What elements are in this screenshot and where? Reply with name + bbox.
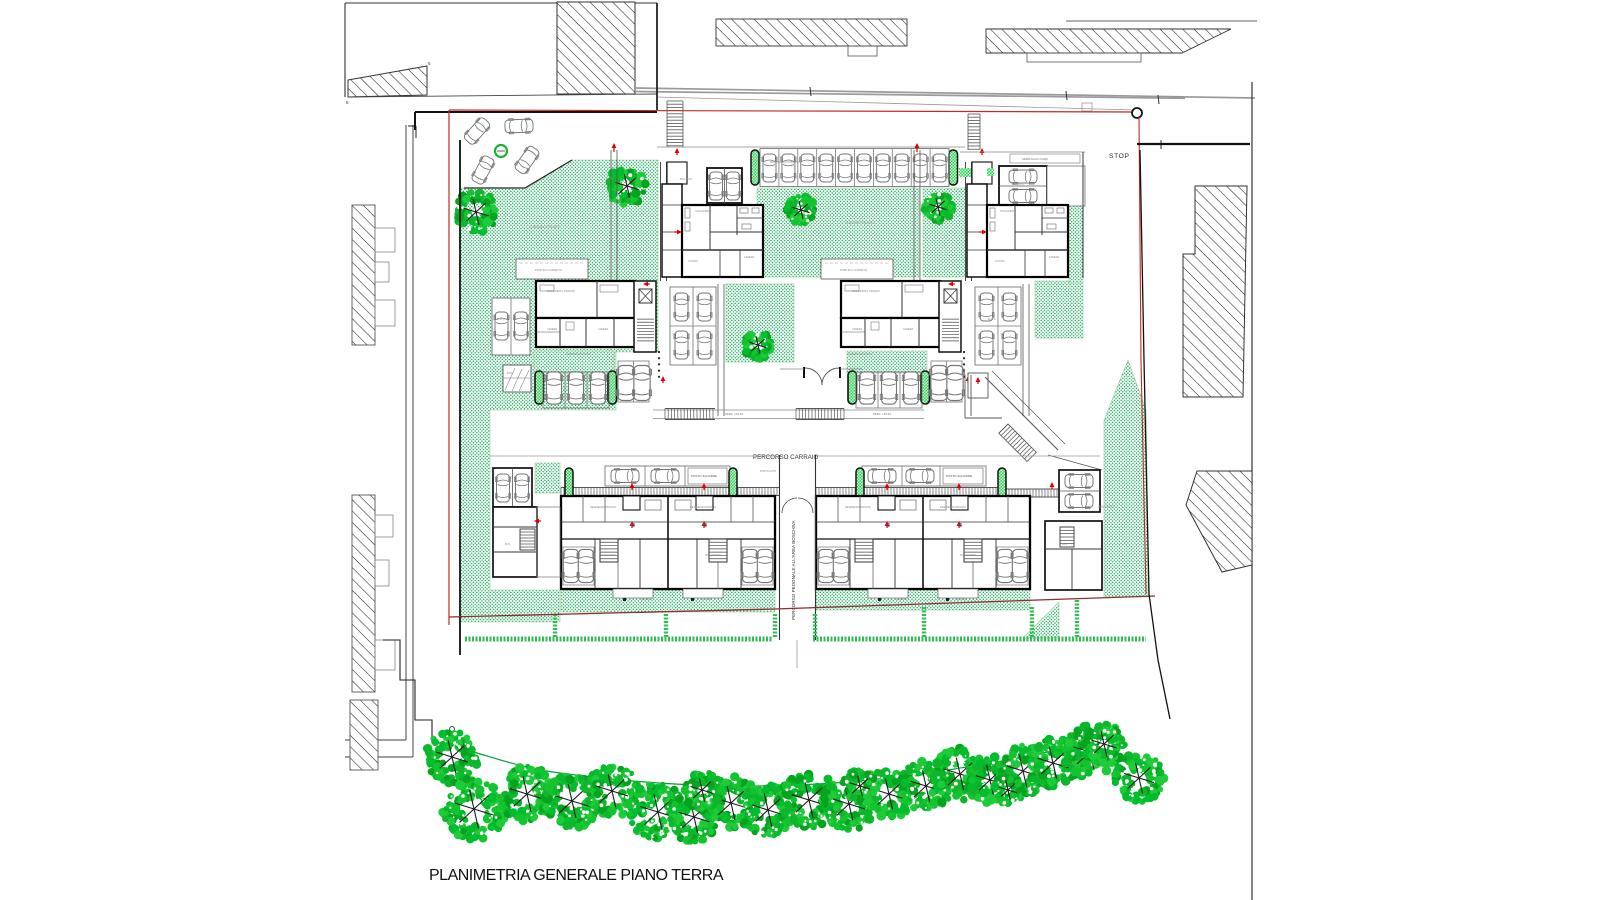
svg-text:POSTO SQUADRE: POSTO SQUADRE bbox=[946, 474, 972, 478]
svg-text:CAMERA: CAMERA bbox=[1049, 256, 1060, 259]
svg-text:PERC. UFFICI: PERC. UFFICI bbox=[873, 412, 892, 416]
svg-text:CAMERA: CAMERA bbox=[598, 328, 609, 331]
svg-text:PERCORSO PEDONALE ALL'AREA BOS: PERCORSO PEDONALE ALL'AREA BOSCHIVA bbox=[791, 519, 796, 620]
svg-text:BOX N: BOX N bbox=[988, 318, 996, 321]
svg-text:GIARDINO: GIARDINO bbox=[1098, 505, 1114, 509]
svg-text:GIARDINO PRIVATO: GIARDINO PRIVATO bbox=[530, 225, 561, 229]
svg-text:CUCINA: CUCINA bbox=[995, 259, 1005, 263]
svg-text:SOGGIORNO: SOGGIORNO bbox=[600, 554, 616, 557]
svg-text:CUCINA: CUCINA bbox=[688, 259, 698, 263]
svg-text:BOX N: BOX N bbox=[497, 318, 505, 321]
svg-text:POSTO SQUADRE: POSTO SQUADRE bbox=[691, 474, 717, 478]
svg-text:GIARDINO PRIVATO: GIARDINO PRIVATO bbox=[566, 352, 591, 356]
svg-text:RESIDENZA PRIVATA: RESIDENZA PRIVATA bbox=[845, 505, 871, 509]
svg-text:GIARDINO: GIARDINO bbox=[640, 598, 652, 601]
svg-text:SOGGIORNO PRANZO: SOGGIORNO PRANZO bbox=[547, 289, 575, 293]
svg-text:RESIDENZA PRIVATA: RESIDENZA PRIVATA bbox=[940, 505, 966, 509]
svg-text:BOX: BOX bbox=[507, 371, 513, 375]
svg-text:GIARDINO: GIARDINO bbox=[895, 598, 907, 601]
svg-text:POSTO AUTO: POSTO AUTO bbox=[760, 470, 776, 473]
svg-text:BOX AUTO: BOX AUTO bbox=[680, 178, 692, 181]
svg-text:SOGGIORNO: SOGGIORNO bbox=[1000, 209, 1016, 213]
svg-text:SERRAGLIO PARK: SERRAGLIO PARK bbox=[1022, 157, 1048, 161]
svg-text:RESIDENZA PRIVATA: RESIDENZA PRIVATA bbox=[590, 505, 616, 509]
svg-text:CAMERA: CAMERA bbox=[903, 328, 914, 331]
svg-text:CAMERA: CAMERA bbox=[744, 256, 755, 259]
svg-text:SOGGIORNO: SOGGIORNO bbox=[855, 554, 871, 557]
svg-text:GIARDINO PRIVATO: GIARDINO PRIVATO bbox=[845, 221, 876, 225]
svg-text:CAMERA: CAMERA bbox=[547, 328, 558, 331]
svg-text:SOGGIORNO: SOGGIORNO bbox=[960, 554, 976, 557]
svg-text:GIARDINO: GIARDINO bbox=[955, 598, 967, 601]
svg-text:PERC. UFFICI: PERC. UFFICI bbox=[725, 412, 744, 416]
svg-text:BOX AUTO: BOX AUTO bbox=[1012, 183, 1024, 186]
svg-text:SOGGIORNO PRANZO: SOGGIORNO PRANZO bbox=[852, 289, 880, 293]
svg-text:GIARDINO PRIVATO: GIARDINO PRIVATO bbox=[848, 352, 873, 356]
svg-text:RESIDENZA PRIVATA: RESIDENZA PRIVATA bbox=[690, 505, 716, 509]
svg-text:GIARDINO: GIARDINO bbox=[700, 598, 712, 601]
svg-text:SOGGIORNO: SOGGIORNO bbox=[705, 554, 721, 557]
svg-text:CAMERA: CAMERA bbox=[852, 328, 863, 331]
svg-text:PARCHEGGIO PUBBLICO: PARCHEGGIO PUBBLICO bbox=[770, 161, 800, 164]
svg-text:PLANIMETRIA GENERALE PIANO TER: PLANIMETRIA GENERALE PIANO TERRA bbox=[429, 867, 724, 884]
svg-text:SOGGIORNO: SOGGIORNO bbox=[695, 209, 711, 213]
svg-text:PORTICO COPERTO: PORTICO COPERTO bbox=[840, 268, 868, 272]
svg-text:STOP: STOP bbox=[1109, 153, 1130, 160]
svg-text:PORTICO COPERTO: PORTICO COPERTO bbox=[535, 268, 563, 272]
svg-text:PERCORSO CARRAIO: PERCORSO CARRAIO bbox=[753, 454, 819, 461]
svg-text:BOX: BOX bbox=[505, 543, 510, 546]
svg-text:BOX: BOX bbox=[1062, 543, 1067, 546]
